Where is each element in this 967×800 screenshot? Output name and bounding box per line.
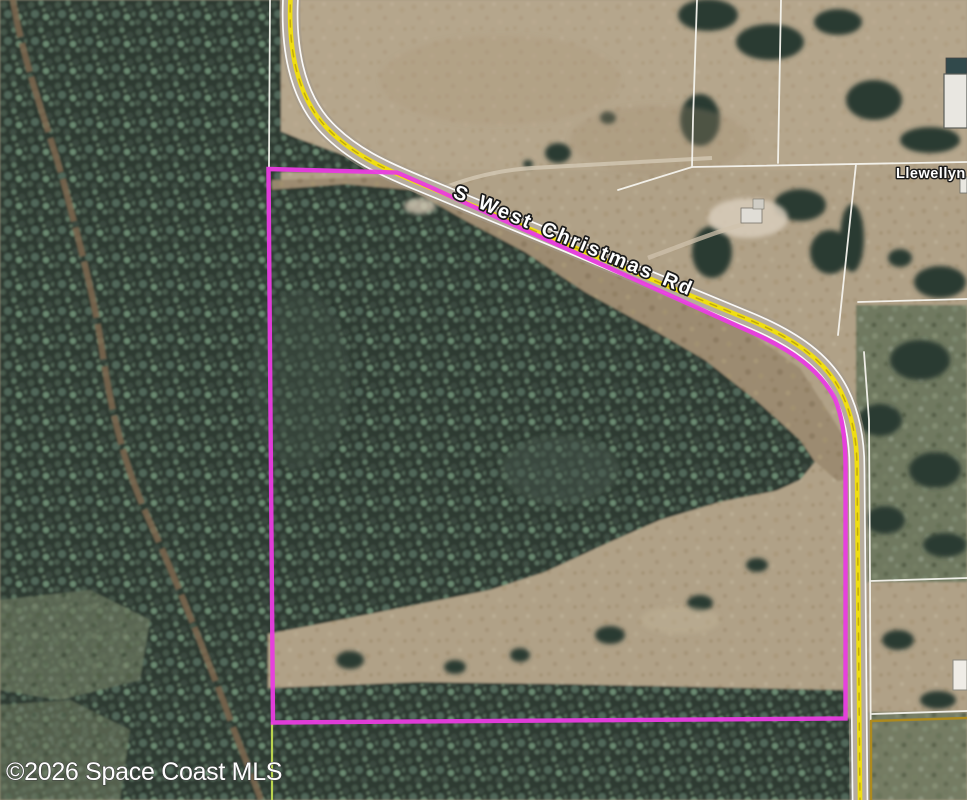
building-top-right [946,58,967,76]
building-house [741,208,762,223]
mls-aerial-map-image: S West Christmas Rd Llewellyn ©2026 Spac… [0,0,967,800]
building-house-shed [753,199,764,209]
side-road-label: Llewellyn [896,166,966,182]
building-bottom-right [953,660,967,690]
building-top-right-roof [944,74,967,128]
satellite-canvas: S West Christmas Rd Llewellyn ©2026 Spac… [0,0,967,800]
mls-watermark: ©2026 Space Coast MLS [6,758,282,786]
